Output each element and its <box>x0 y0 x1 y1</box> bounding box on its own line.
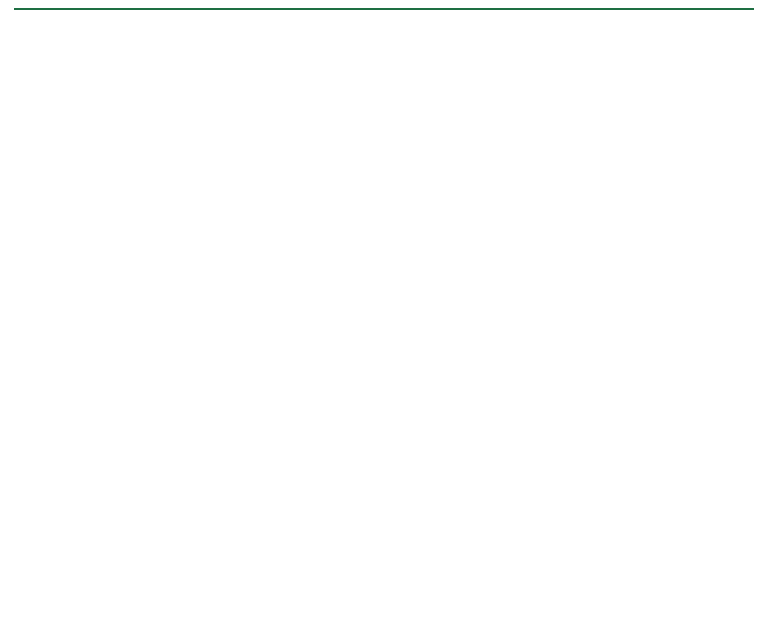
site-plan-svg <box>0 0 766 638</box>
site-plan-map <box>0 0 766 638</box>
title-underline <box>14 8 754 10</box>
header <box>14 6 754 13</box>
